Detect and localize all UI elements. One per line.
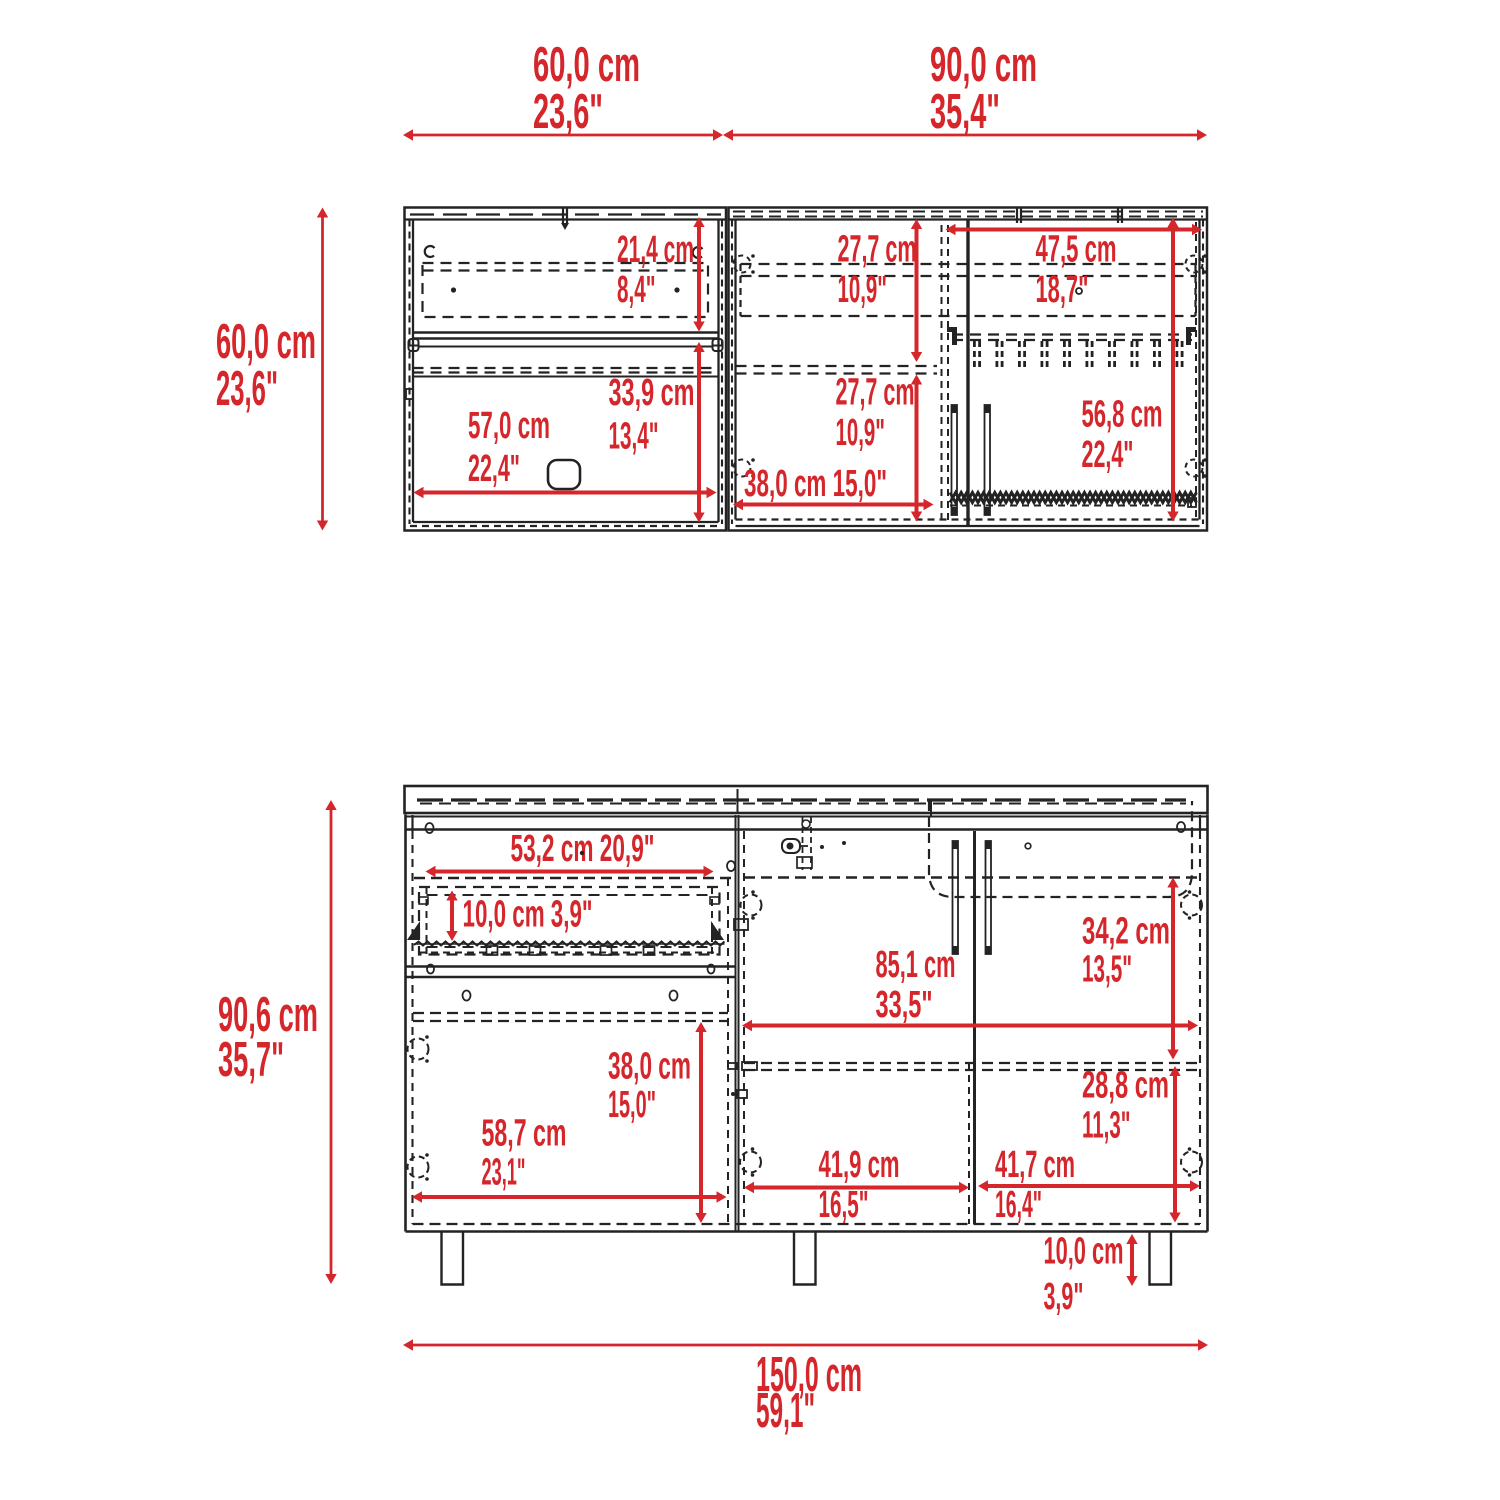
svg-text:15,0": 15,0" <box>608 1084 656 1126</box>
svg-text:28,8 cm: 28,8 cm <box>1082 1065 1169 1107</box>
svg-text:35,7": 35,7" <box>218 1033 284 1087</box>
svg-text:11,3": 11,3" <box>1082 1105 1131 1147</box>
svg-text:8,4": 8,4" <box>617 269 656 311</box>
svg-text:57,0 cm: 57,0 cm <box>468 405 550 447</box>
svg-text:33,5": 33,5" <box>876 984 933 1026</box>
svg-text:56,8 cm: 56,8 cm <box>1082 394 1163 436</box>
svg-text:47,5 cm: 47,5 cm <box>1036 229 1117 271</box>
svg-text:3,9": 3,9" <box>1044 1276 1084 1318</box>
svg-text:23,6": 23,6" <box>533 85 603 139</box>
svg-text:41,7 cm: 41,7 cm <box>995 1144 1075 1186</box>
svg-text:13,4": 13,4" <box>609 416 659 458</box>
svg-text:35,4": 35,4" <box>930 85 1000 139</box>
svg-text:21,4 cm: 21,4 cm <box>617 229 694 271</box>
svg-text:13,5": 13,5" <box>1082 949 1132 991</box>
svg-text:16,5": 16,5" <box>819 1184 869 1226</box>
svg-text:58,7 cm: 58,7 cm <box>482 1113 567 1155</box>
svg-text:90,0 cm: 90,0 cm <box>930 38 1037 92</box>
svg-text:18,7": 18,7" <box>1036 269 1089 311</box>
svg-text:53,2 cm 20,9": 53,2 cm 20,9" <box>511 828 655 870</box>
svg-text:23,6": 23,6" <box>216 362 278 416</box>
svg-text:34,2 cm: 34,2 cm <box>1082 911 1170 953</box>
svg-text:60,0 cm: 60,0 cm <box>216 315 316 369</box>
svg-text:10,0 cm: 10,0 cm <box>1044 1231 1124 1273</box>
svg-text:27,7 cm: 27,7 cm <box>838 229 917 271</box>
svg-text:22,4": 22,4" <box>1082 434 1134 476</box>
svg-text:16,4": 16,4" <box>995 1184 1042 1226</box>
svg-text:10,0 cm 3,9": 10,0 cm 3,9" <box>463 894 593 936</box>
svg-text:38,0 cm: 38,0 cm <box>608 1046 691 1088</box>
svg-text:59,1": 59,1" <box>756 1384 815 1438</box>
svg-text:38,0 cm 15,0": 38,0 cm 15,0" <box>744 463 887 505</box>
svg-text:85,1 cm: 85,1 cm <box>876 944 956 986</box>
svg-text:41,9 cm: 41,9 cm <box>819 1144 900 1186</box>
svg-text:22,4": 22,4" <box>468 448 520 490</box>
svg-text:33,9 cm: 33,9 cm <box>609 372 695 414</box>
svg-text:10,9": 10,9" <box>836 412 886 454</box>
svg-text:60,0 cm: 60,0 cm <box>533 38 640 92</box>
svg-text:23,1": 23,1" <box>482 1152 526 1194</box>
svg-text:27,7 cm: 27,7 cm <box>836 372 915 414</box>
svg-text:10,9": 10,9" <box>838 269 888 311</box>
